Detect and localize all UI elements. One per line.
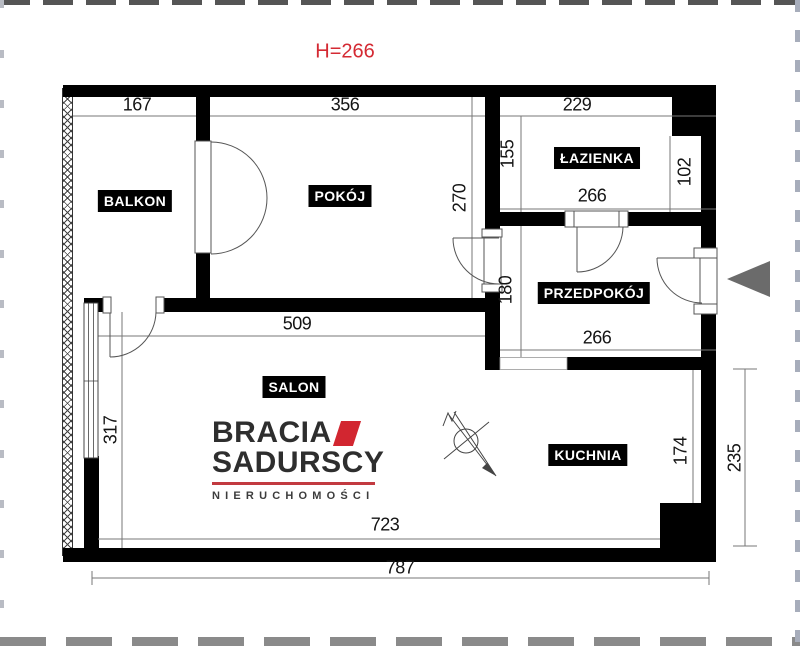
logo-line3: NIERUCHOMOŚCI bbox=[212, 490, 402, 502]
balkon-salon-door bbox=[103, 297, 164, 357]
entrance-door bbox=[657, 248, 717, 314]
dimension-lines bbox=[73, 97, 757, 585]
dim-salon-bottom: 723 bbox=[371, 515, 400, 536]
hall-passage-opening bbox=[500, 358, 567, 370]
floor-plan: H=266 bbox=[0, 0, 800, 647]
window-salon-left bbox=[84, 303, 98, 458]
dim-lazienka-bottom: 266 bbox=[578, 186, 607, 207]
logo-line1: BRACIA bbox=[212, 418, 332, 448]
dim-outer-right: 235 bbox=[725, 444, 746, 473]
dim-przedpokoj-bottom: 266 bbox=[583, 328, 612, 349]
dim-lazienka-right: 102 bbox=[675, 158, 696, 187]
plan-overlay bbox=[0, 0, 800, 647]
room-label-lazienka: ŁAZIENKA bbox=[554, 147, 640, 169]
dim-lazienka-left: 155 bbox=[498, 140, 519, 169]
dim-kuchnia-right: 174 bbox=[671, 437, 692, 466]
room-label-pokoj: POKÓJ bbox=[308, 185, 371, 207]
dim-balkon-width: 167 bbox=[123, 95, 152, 116]
agency-logo: BRACIA SADURSCY NIERUCHOMOŚCI bbox=[212, 418, 402, 502]
dim-total-width: 787 bbox=[386, 558, 415, 579]
logo-red-parallelogram-icon bbox=[333, 421, 361, 446]
room-label-balkon: BALKON bbox=[98, 190, 172, 212]
balcony-french-door bbox=[195, 141, 267, 254]
room-label-salon: SALON bbox=[263, 376, 326, 398]
crossed-circle-ceiling-symbol bbox=[443, 411, 496, 476]
entrance-arrow-icon bbox=[727, 261, 770, 297]
dim-salon-left: 317 bbox=[101, 416, 122, 445]
dim-salon-top: 509 bbox=[283, 314, 312, 335]
logo-line2: SADURSCY bbox=[212, 448, 402, 477]
dim-lazienka-width: 229 bbox=[563, 95, 592, 116]
bathroom-door bbox=[565, 211, 628, 272]
room-label-przedpokoj: PRZEDPOKÓJ bbox=[538, 282, 650, 304]
dim-pokoj-depth: 270 bbox=[450, 184, 471, 213]
dim-przedpokoj-depth: 180 bbox=[496, 276, 517, 305]
dim-pokoj-width: 356 bbox=[331, 95, 360, 116]
logo-red-underline bbox=[212, 482, 375, 485]
room-label-kuchnia: KUCHNIA bbox=[548, 444, 627, 466]
